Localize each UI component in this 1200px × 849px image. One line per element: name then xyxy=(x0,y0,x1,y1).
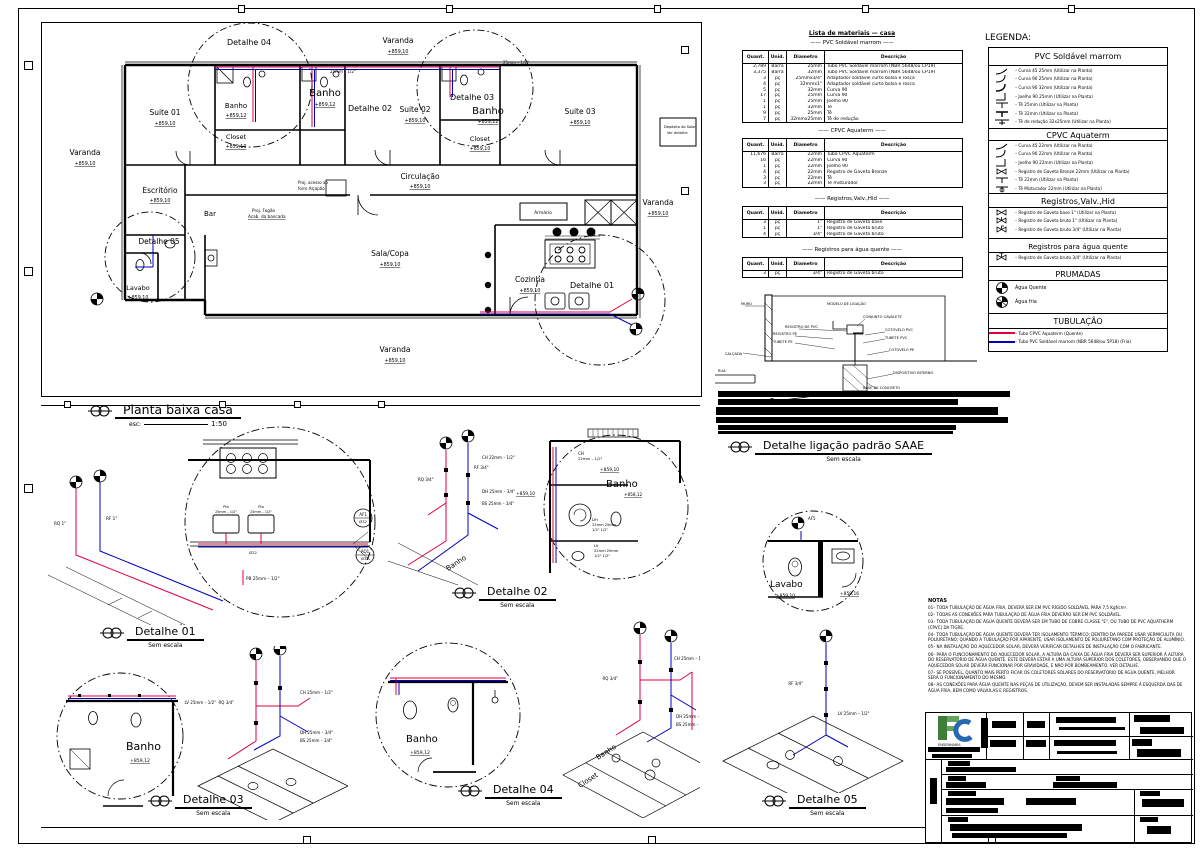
redacted-text xyxy=(1056,776,1080,781)
redacted-text xyxy=(928,747,980,752)
redacted-text xyxy=(1140,791,1160,796)
prumada-fria-icon xyxy=(993,295,1011,309)
legend-item: Água Quente xyxy=(989,281,1167,295)
legend-item: – Joelho 90 25mm (Utilizar na Planta) xyxy=(989,92,1167,101)
walls xyxy=(122,62,696,318)
fold-mark xyxy=(303,836,311,844)
legend-title: LEGENDA: xyxy=(985,33,1031,43)
tb-grid-line xyxy=(1023,713,1024,759)
fold-mark xyxy=(294,401,301,408)
svg-text:AQ1: AQ1 xyxy=(361,549,370,554)
title-block: ENGENHARIA xyxy=(925,712,1192,843)
detail-05-title: Detalhe 05 xyxy=(789,794,866,809)
detail-05-drawing: AF5 Lavabo +859,10 +859,16 RF 3/4" LV 25… xyxy=(698,503,910,793)
deposito-2: Ver detalhe xyxy=(667,131,688,135)
room-varanda-top: Varanda xyxy=(383,36,414,45)
svg-text:+859,10: +859,10 xyxy=(226,144,247,150)
table-row: 4pç3/4"Registro de Gaveta bruto xyxy=(743,232,963,238)
tb-grid-line xyxy=(1129,713,1130,759)
legend-panel: PVC Soldável marrom – Curva 45 25mm (Uti… xyxy=(988,47,1168,352)
svg-text:LV 25mm – 1/2": LV 25mm – 1/2" xyxy=(838,711,870,716)
redacted-text xyxy=(948,776,966,781)
materials-table-pvc: Quant.Unid.DiametroDescrição 2,789Barra2… xyxy=(742,50,963,123)
tb-grid-line xyxy=(941,774,1193,775)
floor-plan-drawing: Varanda +859,10 Varanda +859,10 Varanda … xyxy=(40,22,700,395)
legend-section-prumadas: PRUMADAS xyxy=(989,266,1167,281)
redacted-text xyxy=(932,754,972,758)
svg-text:DH: DH xyxy=(592,517,598,522)
legend-item: – Curva 90 25mm (Utilizar na Planta) xyxy=(989,75,1167,84)
svg-text:22mm – 1/2": 22mm – 1/2" xyxy=(578,456,603,461)
svg-text:Banho: Banho xyxy=(606,479,638,490)
legend-item: – Registro de Gaveta base 1" (Utilizar n… xyxy=(989,208,1167,217)
redacted-note-bar xyxy=(716,407,998,415)
room-suite01: Suite 01 xyxy=(149,108,180,117)
legend-section-cpvc: CPVC Aquaterm xyxy=(989,128,1167,141)
svg-text:+859,10: +859,10 xyxy=(600,467,619,473)
section-mark-icon xyxy=(762,794,786,808)
svg-text:22mm 25mm: 22mm 25mm xyxy=(592,523,617,527)
d5-pipes xyxy=(723,643,903,793)
d5-iso-labels: RF 3/4" LV 25mm – 1/2" xyxy=(788,681,869,716)
fold-mark xyxy=(24,484,33,493)
detail-03-scale: Sem escala xyxy=(196,810,230,817)
svg-text:REGISTRO PE: REGISTRO PE xyxy=(773,332,798,336)
saae-title: Detalhe ligação padrão SAAE xyxy=(755,440,932,455)
redacted-text xyxy=(990,740,1016,747)
room-banho02: Banho xyxy=(309,88,341,99)
room-bar: Bar xyxy=(204,210,216,218)
legend-item: – Registro de Gaveta bruto 1" (Utilizar … xyxy=(989,217,1167,226)
callout-detalhe03: Detalhe 03 xyxy=(450,93,494,102)
col-quant: Quant. xyxy=(743,51,769,64)
materials-section-title: —— PVC Soldável marrom —— xyxy=(742,40,962,46)
d4-bath-plan xyxy=(388,678,508,772)
col-quant: Quant. xyxy=(743,258,769,271)
room-varanda-left: Varanda xyxy=(70,148,101,157)
svg-text:+859,12: +859,12 xyxy=(410,750,430,756)
detail-04-title-block: Detalhe 04Sem escala xyxy=(458,784,562,807)
room-banho03: Banho xyxy=(472,106,504,117)
note-item: 01– TODA TUBULAÇÃO DE ÁGUA FRIA, DEVERÁ … xyxy=(928,605,1186,611)
fold-mark xyxy=(64,401,71,408)
svg-text:TUBETE PVC: TUBETE PVC xyxy=(884,336,908,340)
svg-text:+859,12: +859,12 xyxy=(226,113,247,119)
doors xyxy=(140,150,560,315)
registro-icon xyxy=(993,252,1011,263)
detail-02-scale: Sem escala xyxy=(500,602,534,609)
notes-block: NOTAS 01– TODA TUBULAÇÃO DE ÁGUA FRIA, D… xyxy=(928,598,1186,695)
svg-text:+858,12: +858,12 xyxy=(624,492,642,497)
note-item: 06– PARA O FUNCIONAMENTO DO AQUECEDOR SO… xyxy=(928,652,1186,669)
d3-callout-circle xyxy=(57,673,183,799)
redacted-text xyxy=(1026,740,1046,747)
svg-text:+859,10: +859,10 xyxy=(648,211,669,217)
detail-03-title-block: Detalhe 03Sem escala xyxy=(148,794,252,817)
d4-circle-labels: Banho +859,12 xyxy=(406,734,438,756)
section-mark-icon xyxy=(148,794,172,808)
svg-text:RQ 3/4": RQ 3/4" xyxy=(603,676,619,681)
note-item: 08– AS CONEXÕES PARA ÁGUA QUENTE NAS PEÇ… xyxy=(928,682,1186,693)
legend-item: – Tê 22mm (Utilizar na Planta) xyxy=(989,175,1167,184)
pipe-label-2: 25mm – 1/2" xyxy=(503,60,529,65)
redacted-text xyxy=(1134,715,1170,722)
redacted-text xyxy=(950,824,1082,831)
materials-table-registros: Quant.Unid.DiametroDescrição 3pç1"Regist… xyxy=(742,206,963,238)
room-circulacao: Circulação xyxy=(400,172,440,181)
svg-text:+859,10: +859,10 xyxy=(388,49,409,55)
registro-icon xyxy=(993,225,1011,234)
proj-alcapao-2: forro Alçapão xyxy=(298,186,325,191)
redacted-text xyxy=(1137,749,1181,757)
legend-item: – Curva 90 32mm (Utilizar na Planta) xyxy=(989,83,1167,92)
col-desc: Descrição xyxy=(825,207,963,220)
svg-text:+859,10: +859,10 xyxy=(150,198,171,204)
redacted-text xyxy=(1026,798,1076,805)
redacted-note-bar xyxy=(716,417,1008,423)
room-lavabo: Lavabo xyxy=(126,284,150,292)
fold-mark xyxy=(648,836,656,844)
room-armario: Armário xyxy=(534,209,552,216)
tb-grid-line xyxy=(941,789,1193,790)
redacted-text xyxy=(948,761,970,766)
detail-04-scale: Sem escala xyxy=(506,800,540,807)
svg-text:1/2" 1/2": 1/2" 1/2" xyxy=(594,554,610,558)
svg-text:+859,12: +859,12 xyxy=(315,102,336,108)
legend-section-tubulacao: TUBULAÇÃO xyxy=(989,313,1167,329)
redacted-note-bar xyxy=(718,391,1010,397)
note-item: 02– TODAS AS CONEXÕES PARA TUBULAÇÃO DE … xyxy=(928,612,1186,618)
svg-text:+859,12: +859,12 xyxy=(478,119,499,125)
tb-grid-line xyxy=(1134,789,1135,844)
redacted-note-bar xyxy=(718,399,958,405)
tb-grid-line xyxy=(986,736,1193,737)
svg-text:Banho: Banho xyxy=(126,740,161,753)
tb-grid-line xyxy=(941,759,942,844)
d1-pipes xyxy=(48,482,243,625)
svg-text:CALÇADA: CALÇADA xyxy=(725,352,743,356)
fold-mark xyxy=(1068,5,1075,13)
detail-01-drawing: RQ 1" RF 1" PB 25mm – 1/2" Pia 25mm – 1/… xyxy=(48,420,388,625)
svg-text:+859,16: +859,16 xyxy=(840,591,859,597)
section-mark-icon xyxy=(458,784,482,798)
section-mark-icon xyxy=(88,404,112,418)
col-quant: Quant. xyxy=(743,207,769,220)
detail-05-scale: Sem escala xyxy=(810,810,844,817)
col-unid: Unid. xyxy=(769,207,787,220)
d2-callout-circle xyxy=(544,435,688,579)
room-suite02: Suite 02 xyxy=(399,105,430,114)
svg-text:+859,10: +859,10 xyxy=(516,491,535,497)
tb-grid-line xyxy=(941,815,1193,816)
table-row: 3pç3/4"Registro de Gaveta bruto xyxy=(743,271,963,278)
section-mark-icon xyxy=(452,586,476,600)
svg-text:25mm – 1/2": 25mm – 1/2" xyxy=(250,510,272,514)
svg-text:BASE DE CONCRETO: BASE DE CONCRETO xyxy=(863,386,900,390)
svg-text:BS 25mm – 3/4": BS 25mm – 3/4" xyxy=(300,738,332,743)
legend-item: Água fria xyxy=(989,295,1167,309)
redacted-text xyxy=(952,833,1067,838)
redacted-text xyxy=(1059,727,1125,730)
materials-title: Lista de materiais — casa xyxy=(742,30,962,37)
svg-text:Pia: Pia xyxy=(258,504,264,509)
te-reducao-icon xyxy=(993,117,1011,126)
svg-text:PB 25mm – 1/2": PB 25mm – 1/2" xyxy=(246,576,280,581)
legend-item: – Joelho 90 22mm (Utilizar na Planta) xyxy=(989,158,1167,167)
redacted-text xyxy=(946,767,1016,772)
proj-fogao: Proj. Fogão xyxy=(252,208,276,213)
svg-text:DH 25mm – 3/4": DH 25mm – 3/4" xyxy=(676,714,700,719)
col-unid: Unid. xyxy=(769,139,787,152)
legend-section-registros: Registros,Valv.,Hid xyxy=(989,193,1167,208)
col-desc: Descrição xyxy=(825,139,963,152)
svg-text:DH 25mm – 3/4": DH 25mm – 3/4" xyxy=(300,730,333,735)
svg-text:25mm – 1/2": 25mm – 1/2" xyxy=(215,510,237,514)
svg-text:Banho: Banho xyxy=(406,734,438,745)
note-item: 04– TODA TUBULAÇÃO DE ÁGUA QUENTE DEVERÁ… xyxy=(928,632,1186,643)
d2-circle-labels: CH 22mm – 1/2" +859,10 Banho +858,12 +85… xyxy=(516,451,642,558)
legend-item: – Registro de Gaveta bruto 3/4" (Utiliza… xyxy=(989,253,1167,262)
redacted-note-bar xyxy=(718,431,953,434)
plan-title: Planta baixa casa xyxy=(115,404,241,419)
svg-text:COTOVELO PVC: COTOVELO PVC xyxy=(885,328,913,332)
svg-text:CH 22mm – 1/2": CH 22mm – 1/2" xyxy=(482,455,515,460)
d1-kitchen-plan xyxy=(188,440,370,560)
svg-text:LV 25mm – 1/2": LV 25mm – 1/2" xyxy=(185,700,217,705)
note-item: 05– NA INSTALAÇÃO DO AQUECEDOR SOLAR, DE… xyxy=(928,644,1186,650)
room-closet01: Closet xyxy=(226,133,247,141)
svg-text:RQ 3/4": RQ 3/4" xyxy=(418,477,434,482)
redacted-text xyxy=(946,798,1004,805)
fold-mark xyxy=(24,61,33,70)
svg-text:LV: LV xyxy=(594,543,599,548)
materials-section-title: —— Registros para água quente —— xyxy=(742,247,962,253)
room-escritorio: Escritório xyxy=(142,186,178,195)
redacted-text xyxy=(1140,727,1184,734)
table-row: 2,789Barra25mmTubo PVC Soldável marrom (… xyxy=(743,64,963,70)
svg-text:Closet: Closet xyxy=(577,771,600,790)
legend-item: – Tubo CPVC Aquaterm (Quente) xyxy=(989,329,1167,338)
svg-text:Banho: Banho xyxy=(445,554,468,573)
section-mark-icon xyxy=(728,440,752,454)
redacted-text xyxy=(948,817,968,822)
detail-01-title: Detalhe 01 xyxy=(127,626,204,641)
svg-text:TUBETE PE: TUBETE PE xyxy=(772,340,793,344)
table-row: 7pç32mmx25mmTê de redução xyxy=(743,116,963,122)
col-diam: Diametro xyxy=(787,207,825,220)
tb-grid-line xyxy=(926,759,1193,760)
svg-text:CH 25mm – 1/2": CH 25mm – 1/2" xyxy=(300,690,333,695)
stove xyxy=(545,228,600,268)
detail-04-title: Detalhe 04 xyxy=(485,784,562,799)
note-item: 07– SE POSSÍVEL, QUANTO MAIS PERTO FICAR… xyxy=(928,670,1186,681)
svg-text:RF 1": RF 1" xyxy=(106,516,117,521)
d2-iso-labels: RQ 3/4" RF 3/4" CH 22mm – 1/2" DH 25mm –… xyxy=(418,455,515,573)
notes-title: NOTAS xyxy=(928,598,1186,604)
redacted-text xyxy=(1054,740,1116,746)
svg-text:Ø32: Ø32 xyxy=(359,519,367,524)
d3-circle-labels: Banho +859,12 xyxy=(126,740,161,764)
redacted-text xyxy=(1142,799,1184,807)
col-quant: Quant. xyxy=(743,139,769,152)
room-sala-copa: Sala/Copa xyxy=(371,249,409,258)
col-unid: Unid. xyxy=(769,258,787,271)
fold-mark xyxy=(862,5,869,13)
fold-mark xyxy=(24,267,33,276)
redacted-note-bar xyxy=(718,425,956,430)
section-mark-icon xyxy=(100,626,124,640)
svg-text:+859,10: +859,10 xyxy=(410,184,431,190)
legend-item: – Registro de Gaveta bruto 3/4" (Utiliza… xyxy=(989,225,1167,234)
legend-item: – Curva 45 22mm (Utilizar na Planta) xyxy=(989,141,1167,150)
detail-02-drawing: RQ 3/4" RF 3/4" CH 22mm – 1/2" DH 25mm –… xyxy=(388,423,700,585)
legend-item: – Tê 32mm (Utilizar na Planta) xyxy=(989,109,1167,118)
room-varanda-bottom: Varanda xyxy=(380,345,411,354)
svg-text:COTOVELO PE: COTOVELO PE xyxy=(889,348,915,352)
svg-text:AF1: AF1 xyxy=(359,512,367,517)
svg-text:+859,10: +859,10 xyxy=(776,593,795,599)
d3-iso-labels: RQ 3/4" CH 25mm – 1/2" DH 25mm – 3/4" BS… xyxy=(185,690,334,743)
svg-text:DH 25mm – 3/4": DH 25mm – 3/4" xyxy=(482,489,515,494)
svg-text:+859,10: +859,10 xyxy=(570,120,591,126)
detail-03-title: Detalhe 03 xyxy=(175,794,252,809)
svg-text:RUA: RUA xyxy=(718,369,726,373)
svg-text:+859,10: +859,10 xyxy=(75,161,96,167)
legend-section-pvc: PVC Soldável marrom xyxy=(989,48,1167,66)
cold-pipe-sample xyxy=(989,341,1015,343)
svg-text:+859,10: +859,10 xyxy=(385,358,406,364)
legend-item: – Tubo PVC Soldável marrom (NBR 5648/ou … xyxy=(989,338,1167,347)
hot-pipe-sample xyxy=(989,332,1015,334)
redacted-text xyxy=(946,808,998,813)
redacted-text xyxy=(930,778,937,804)
svg-text:RQ 3/4": RQ 3/4" xyxy=(219,700,235,705)
redacted-text xyxy=(1140,817,1158,822)
fold-mark xyxy=(654,5,661,13)
table-row: 3,375Barra32mmTubo PVC Soldável marrom (… xyxy=(743,70,963,76)
redacted-text xyxy=(948,791,976,796)
redacted-text xyxy=(1027,721,1045,728)
svg-text:CH 25mm – 1/2": CH 25mm – 1/2" xyxy=(674,656,700,661)
svg-text:+859,10: +859,10 xyxy=(520,288,541,294)
svg-text:CONJUNTO CAVALETE: CONJUNTO CAVALETE xyxy=(863,315,902,319)
svg-text:RQ 1": RQ 1" xyxy=(54,521,66,526)
fold-mark xyxy=(238,5,245,13)
col-desc: Descrição xyxy=(825,51,963,64)
svg-text:RF 3/4": RF 3/4" xyxy=(788,681,803,686)
svg-text:Ø22: Ø22 xyxy=(249,550,257,555)
svg-text:MURO: MURO xyxy=(741,302,752,306)
d3-bath-plan xyxy=(66,694,178,806)
fold-mark xyxy=(378,401,385,408)
detail-02-title: Detalhe 02 xyxy=(479,586,556,601)
svg-text:+859,12: +859,12 xyxy=(130,758,150,764)
redacted-text xyxy=(1147,826,1171,834)
col-diam: Diametro xyxy=(787,258,825,271)
company-logo: ENGENHARIA xyxy=(932,715,980,747)
tb-grid-line xyxy=(1049,713,1050,759)
svg-text:Banho: Banho xyxy=(595,743,618,762)
prumada-quente-icon xyxy=(993,281,1011,295)
callout-detalhe05: Detalhe 05 xyxy=(138,237,180,246)
redacted-text xyxy=(992,721,1016,728)
saae-linework xyxy=(715,295,977,404)
svg-text:+859,10: +859,10 xyxy=(405,118,426,124)
detail-02-title-block: Detalhe 02Sem escala xyxy=(452,586,556,609)
svg-text:22mm 25mm: 22mm 25mm xyxy=(594,549,619,553)
table-row: 3pç22mmTê misturador xyxy=(743,181,963,187)
svg-text:+859,10: +859,10 xyxy=(470,146,491,152)
svg-text:BS 25mm – 3/4": BS 25mm – 3/4" xyxy=(482,501,514,506)
callout-detalhe01: Detalhe 01 xyxy=(570,281,614,290)
col-diam: Diametro xyxy=(787,51,825,64)
deposito-1: Depósito do Solar xyxy=(664,125,696,129)
legend-item: – Tê Misturador 22mm (Utilizar na Planta… xyxy=(989,184,1167,193)
svg-text:+859,10: +859,10 xyxy=(155,121,176,127)
saae-labels: MURO CALÇADA RUA REGISTRO DE PVC MODELO … xyxy=(718,301,933,390)
svg-text:RF 3/4": RF 3/4" xyxy=(474,465,489,470)
svg-text:MODELO DE LIGAÇÃO: MODELO DE LIGAÇÃO xyxy=(827,301,866,306)
materials-section-title: —— CPVC Aquaterm —— xyxy=(742,128,962,134)
fold-mark xyxy=(446,5,453,13)
svg-text:BS 25mm – 3/4": BS 25mm – 3/4" xyxy=(676,722,700,727)
detail-05-title-block: Detalhe 05Sem escala xyxy=(762,794,866,817)
room-cozinha: Cozinha xyxy=(515,275,545,284)
col-diam: Diametro xyxy=(787,139,825,152)
d1-iso-labels: RQ 1" RF 1" PB 25mm – 1/2" xyxy=(54,516,280,581)
svg-text:REGISTRO DE PVC: REGISTRO DE PVC xyxy=(785,325,818,329)
svg-text:Lavabo: Lavabo xyxy=(770,580,803,590)
d4-callout-circle xyxy=(376,643,520,787)
svg-text:1/2" 1/2": 1/2" 1/2" xyxy=(592,528,608,532)
svg-text:Ø32: Ø32 xyxy=(361,556,369,561)
columns xyxy=(485,252,491,313)
materials-table-cpvc: Quant.Unid.DiametroDescrição 11,676Barra… xyxy=(742,138,963,188)
legend-item: – Tê de redução 32x25mm (Utilizar na Pla… xyxy=(989,118,1167,127)
drawing-sheet: Varanda +859,10 Varanda +859,10 Varanda … xyxy=(0,0,1200,849)
room-closet02: Closet xyxy=(470,135,491,143)
pipe-label-1: 25mm – 1/2" xyxy=(330,69,356,74)
legend-item: – Curva 45 25mm (Utilizar na Planta) xyxy=(989,66,1167,75)
svg-text:+859,10: +859,10 xyxy=(128,295,149,301)
te-misturador-icon xyxy=(993,184,1011,193)
redacted-text xyxy=(981,718,988,748)
callout-detalhe02: Detalhe 02 xyxy=(348,104,392,113)
room-banho01: Banho xyxy=(225,102,247,110)
svg-text:Pia: Pia xyxy=(223,504,229,509)
saae-scale: Sem escala xyxy=(826,456,860,463)
svg-text:DISPOSITIVO INTERNO: DISPOSITIVO INTERNO xyxy=(893,371,933,375)
col-unid: Unid. xyxy=(769,51,787,64)
redacted-text xyxy=(946,782,986,788)
room-varanda-right: Varanda xyxy=(643,198,674,207)
room-suite03: Suite 03 xyxy=(564,107,595,116)
redacted-text xyxy=(1057,751,1117,754)
redacted-text xyxy=(1132,739,1152,746)
redacted-text xyxy=(1056,717,1116,723)
callout-detalhe04: Detalhe 04 xyxy=(227,38,271,47)
svg-text:+859,10: +859,10 xyxy=(380,262,401,268)
note-item: 03– TODA TUBULAÇÃO DE ÁGUA QUENTE DEVERÁ… xyxy=(928,619,1186,630)
legend-item: – Registro de Gaveta Bronze 22mm (Utiliz… xyxy=(989,167,1167,176)
legend-item: – Curva 90 22mm (Utilizar na Planta) xyxy=(989,150,1167,159)
legend-item: – Tê 25mm (Utilizar na Planta) xyxy=(989,100,1167,109)
col-desc: Descrição xyxy=(825,258,963,271)
d1-callout-circle xyxy=(185,427,375,617)
redacted-text xyxy=(1053,782,1117,788)
proj-alcapao-1: Proj. acesso ao xyxy=(298,180,328,185)
acab-bancada: Acab. da bancada xyxy=(248,214,286,219)
